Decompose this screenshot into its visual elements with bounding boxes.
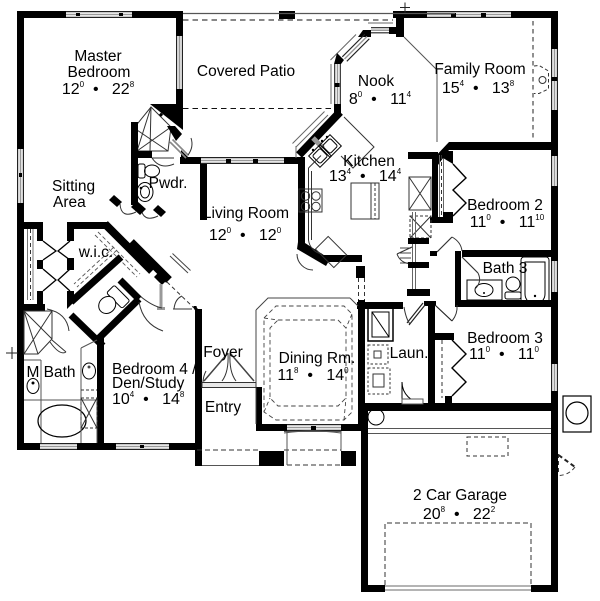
svg-text:M Bath: M Bath <box>26 364 75 381</box>
svg-text:110 • 1110: 110 • 1110 <box>470 213 545 231</box>
svg-text:Entry: Entry <box>205 399 241 416</box>
svg-text:110 • 110: 110 • 110 <box>469 345 540 363</box>
svg-text:Dining Rm.: Dining Rm. <box>279 350 356 367</box>
svg-text:134 • 144: 134 • 144 <box>329 167 402 185</box>
svg-text:154 • 138: 154 • 138 <box>442 79 515 97</box>
svg-text:Covered Patio: Covered Patio <box>197 63 295 80</box>
svg-text:Family Room: Family Room <box>434 61 525 78</box>
svg-text:Area: Area <box>53 194 86 211</box>
svg-text:104 • 148: 104 • 148 <box>112 390 185 408</box>
svg-text:Den/Study: Den/Study <box>112 375 185 392</box>
svg-text:208 • 222: 208 • 222 <box>423 505 496 523</box>
svg-text:2 Car Garage: 2 Car Garage <box>413 487 507 504</box>
svg-text:Bedroom: Bedroom <box>68 64 131 81</box>
svg-text:Bath 3: Bath 3 <box>483 260 528 277</box>
svg-text:Nook: Nook <box>358 73 394 90</box>
svg-text:120 • 120: 120 • 120 <box>209 226 282 244</box>
svg-text:118 • 140: 118 • 140 <box>277 366 349 384</box>
svg-text:Sitting: Sitting <box>52 178 95 195</box>
svg-text:Laun.: Laun. <box>390 345 429 362</box>
svg-text:Pwdr.: Pwdr. <box>149 175 188 192</box>
svg-text:Bedroom 3: Bedroom 3 <box>467 330 543 347</box>
svg-text:Master: Master <box>74 48 121 65</box>
svg-text:120 • 228: 120 • 228 <box>62 80 135 98</box>
svg-text:Living Room: Living Room <box>203 205 289 222</box>
svg-text:Foyer: Foyer <box>203 344 243 361</box>
svg-text:w.i.c.: w.i.c. <box>78 244 113 261</box>
svg-text:Bedroom 2: Bedroom 2 <box>467 197 543 214</box>
